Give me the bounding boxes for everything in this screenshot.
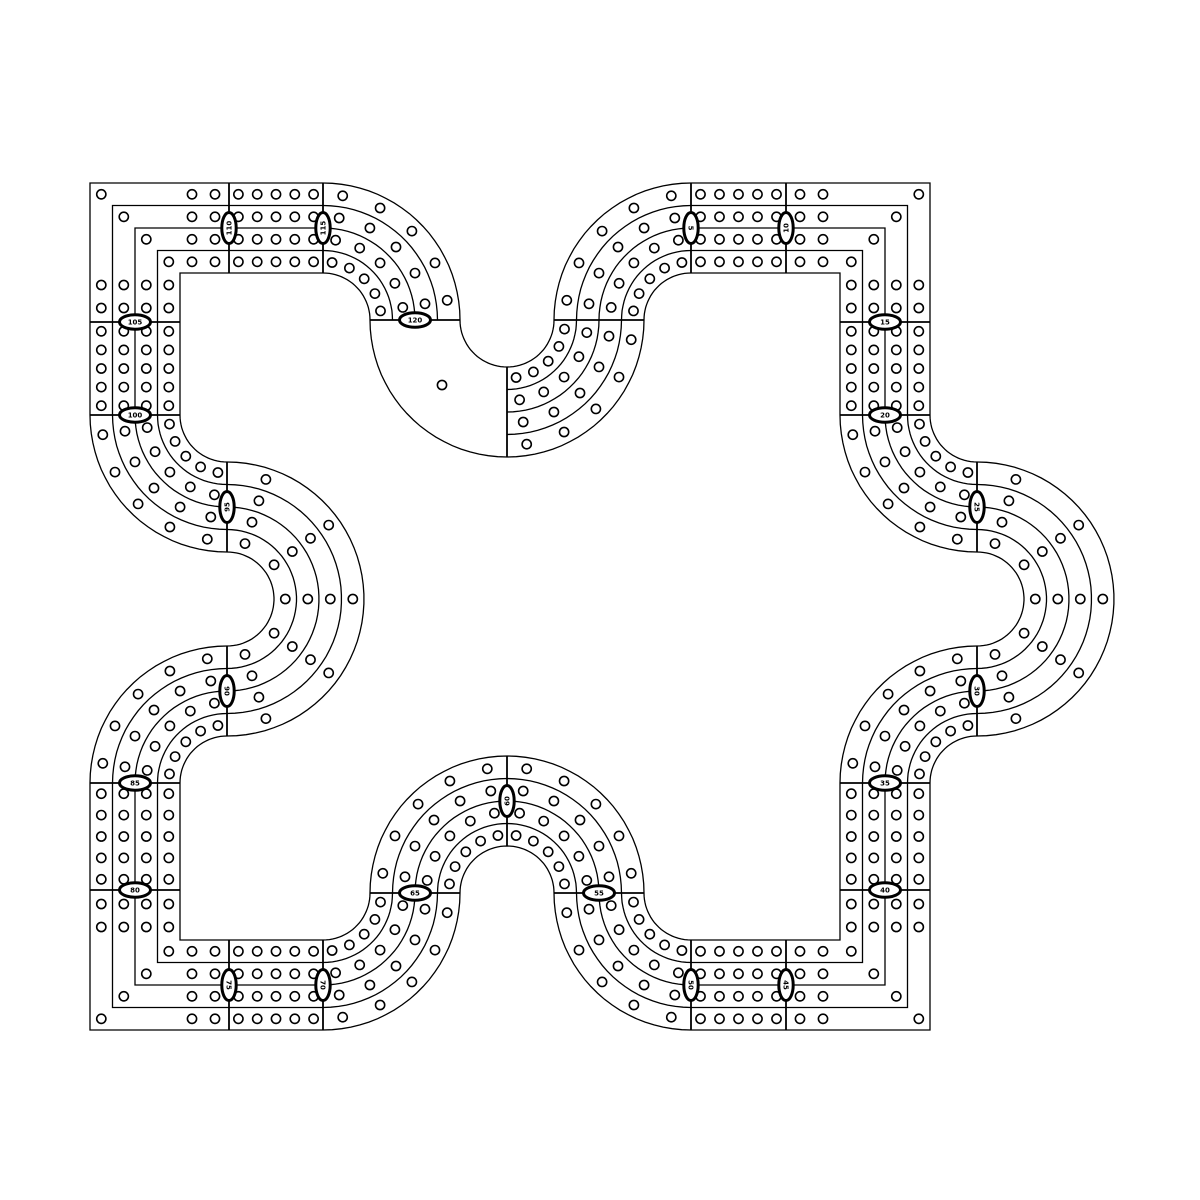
peg-hole xyxy=(914,364,923,373)
peg-hole xyxy=(953,654,962,663)
peg-hole xyxy=(390,279,399,288)
peg-hole xyxy=(1004,693,1013,702)
peg-hole xyxy=(186,482,195,491)
peg-hole xyxy=(290,257,299,266)
peg-hole xyxy=(554,342,563,351)
peg-hole xyxy=(324,668,333,677)
peg-hole xyxy=(598,977,607,986)
peg-hole xyxy=(400,872,409,881)
peg-hole xyxy=(914,190,923,199)
peg-hole xyxy=(734,190,743,199)
mile-marker-value: 40 xyxy=(880,886,890,894)
peg-hole xyxy=(143,423,152,432)
peg-hole xyxy=(414,800,423,809)
peg-hole xyxy=(869,303,878,312)
peg-hole xyxy=(584,299,593,308)
peg-hole xyxy=(493,831,502,840)
peg-hole xyxy=(97,190,106,199)
peg-hole xyxy=(677,258,686,267)
peg-hole xyxy=(734,992,743,1001)
mile-marker-value: 25 xyxy=(973,502,981,512)
peg-hole xyxy=(696,257,705,266)
peg-hole xyxy=(847,345,856,354)
peg-hole xyxy=(946,462,955,471)
peg-hole xyxy=(604,332,613,341)
peg-hole xyxy=(560,427,569,436)
peg-hole xyxy=(119,280,128,289)
peg-hole xyxy=(98,430,107,439)
peg-hole xyxy=(119,383,128,392)
peg-hole xyxy=(696,1014,705,1023)
peg-hole xyxy=(376,306,385,315)
peg-hole xyxy=(326,594,335,603)
peg-hole xyxy=(953,535,962,544)
peg-hole xyxy=(430,258,439,267)
peg-hole xyxy=(270,560,279,569)
peg-hole xyxy=(914,875,923,884)
peg-hole xyxy=(1011,714,1020,723)
peg-hole xyxy=(288,547,297,556)
peg-hole xyxy=(560,831,569,840)
peg-hole xyxy=(445,776,454,785)
peg-hole xyxy=(98,759,107,768)
peg-hole xyxy=(309,947,318,956)
peg-hole xyxy=(869,832,878,841)
peg-hole xyxy=(847,947,856,956)
peg-hole xyxy=(753,212,762,221)
peg-hole xyxy=(847,922,856,931)
peg-hole xyxy=(196,727,205,736)
peg-hole xyxy=(847,401,856,410)
peg-hole xyxy=(490,809,499,818)
peg-hole xyxy=(847,875,856,884)
peg-hole xyxy=(338,191,347,200)
peg-hole xyxy=(97,401,106,410)
peg-hole xyxy=(253,190,262,199)
peg-hole xyxy=(187,212,196,221)
peg-hole xyxy=(574,852,583,861)
peg-hole xyxy=(772,190,781,199)
peg-hole xyxy=(956,676,965,685)
peg-hole xyxy=(753,969,762,978)
peg-hole xyxy=(187,992,196,1001)
peg-hole xyxy=(795,969,804,978)
mile-marker-value: 15 xyxy=(880,318,890,326)
peg-hole xyxy=(164,257,173,266)
mile-marker-value: 60 xyxy=(503,796,511,806)
peg-hole xyxy=(328,258,337,267)
peg-hole xyxy=(629,946,638,955)
peg-hole xyxy=(529,367,538,376)
peg-hole xyxy=(892,212,901,221)
peg-hole xyxy=(960,699,969,708)
peg-hole xyxy=(869,364,878,373)
peg-hole xyxy=(206,512,215,521)
peg-hole xyxy=(142,853,151,862)
peg-hole xyxy=(869,853,878,862)
peg-hole xyxy=(423,876,432,885)
peg-hole xyxy=(892,280,901,289)
peg-hole xyxy=(253,969,262,978)
peg-hole xyxy=(515,809,524,818)
peg-hole xyxy=(365,980,374,989)
peg-hole xyxy=(582,876,591,885)
peg-hole xyxy=(667,1013,676,1022)
peg-hole xyxy=(915,420,924,429)
peg-hole xyxy=(615,925,624,934)
peg-hole xyxy=(97,922,106,931)
mile-marker: 90 xyxy=(220,676,234,707)
peg-hole xyxy=(847,789,856,798)
peg-hole xyxy=(892,303,901,312)
mile-marker-value: 90 xyxy=(223,686,231,696)
peg-hole xyxy=(149,483,158,492)
peg-hole xyxy=(936,707,945,716)
peg-hole xyxy=(734,1014,743,1023)
peg-hole xyxy=(696,947,705,956)
peg-hole xyxy=(181,737,190,746)
peg-hole xyxy=(715,992,724,1001)
mile-marker-value: 30 xyxy=(973,686,981,696)
peg-hole xyxy=(306,655,315,664)
peg-hole xyxy=(795,992,804,1001)
peg-hole xyxy=(187,969,196,978)
peg-hole xyxy=(591,404,600,413)
mile-marker-value: 70 xyxy=(319,980,327,990)
peg-hole xyxy=(97,327,106,336)
peg-hole xyxy=(376,258,385,267)
peg-hole xyxy=(560,325,569,334)
peg-hole xyxy=(607,303,616,312)
mile-marker: 80 xyxy=(120,883,151,897)
peg-hole xyxy=(914,280,923,289)
peg-hole xyxy=(97,832,106,841)
peg-hole xyxy=(892,345,901,354)
peg-hole xyxy=(290,992,299,1001)
peg-hole xyxy=(734,969,743,978)
peg-hole xyxy=(270,629,279,638)
peg-hole xyxy=(142,832,151,841)
peg-hole xyxy=(753,235,762,244)
peg-hole xyxy=(254,693,263,702)
peg-hole xyxy=(97,280,106,289)
peg-hole xyxy=(309,1014,318,1023)
peg-hole xyxy=(715,1014,724,1023)
peg-hole xyxy=(324,521,333,530)
peg-hole xyxy=(869,280,878,289)
peg-hole xyxy=(165,721,174,730)
peg-hole xyxy=(187,235,196,244)
peg-hole xyxy=(522,764,531,773)
peg-hole xyxy=(614,373,623,382)
peg-hole xyxy=(210,969,219,978)
peg-hole xyxy=(584,905,593,914)
peg-hole xyxy=(355,960,364,969)
peg-hole xyxy=(914,811,923,820)
mile-marker: 35 xyxy=(870,776,901,790)
peg-hole xyxy=(335,990,344,999)
peg-hole xyxy=(164,947,173,956)
peg-hole xyxy=(164,811,173,820)
mile-marker: 65 xyxy=(400,886,431,900)
peg-hole xyxy=(143,766,152,775)
peg-hole xyxy=(338,1013,347,1022)
peg-hole xyxy=(549,796,558,805)
mile-marker-value: 35 xyxy=(880,779,890,787)
peg-hole xyxy=(607,901,616,910)
peg-hole xyxy=(290,969,299,978)
peg-hole xyxy=(97,789,106,798)
peg-hole xyxy=(613,242,622,251)
peg-hole xyxy=(715,969,724,978)
mile-marker-value: 65 xyxy=(410,889,420,897)
peg-hole xyxy=(997,518,1006,527)
peg-hole xyxy=(120,427,129,436)
peg-hole xyxy=(892,992,901,1001)
peg-hole xyxy=(130,457,139,466)
peg-hole xyxy=(734,947,743,956)
mile-marker: 120 xyxy=(400,313,431,327)
peg-hole xyxy=(290,190,299,199)
peg-hole xyxy=(901,742,910,751)
peg-hole xyxy=(376,946,385,955)
peg-hole xyxy=(539,817,548,826)
peg-hole xyxy=(847,853,856,862)
drawing-page: 5101520253035404550556065707580859095100… xyxy=(0,0,1200,1200)
peg-hole xyxy=(445,831,454,840)
peg-hole xyxy=(869,969,878,978)
peg-hole xyxy=(164,922,173,931)
mile-marker: 105 xyxy=(120,315,151,329)
peg-hole xyxy=(210,235,219,244)
peg-hole xyxy=(164,327,173,336)
mile-marker: 25 xyxy=(970,492,984,523)
peg-hole xyxy=(309,190,318,199)
mile-marker: 75 xyxy=(222,970,236,1001)
peg-hole xyxy=(847,364,856,373)
peg-hole xyxy=(210,992,219,1001)
peg-hole xyxy=(164,832,173,841)
peg-hole xyxy=(753,992,762,1001)
peg-hole xyxy=(562,908,571,917)
peg-hole xyxy=(410,269,419,278)
peg-hole xyxy=(290,1014,299,1023)
peg-hole xyxy=(753,947,762,956)
peg-hole xyxy=(818,992,827,1001)
peg-hole xyxy=(407,977,416,986)
peg-hole xyxy=(261,714,270,723)
mile-marker-value: 110 xyxy=(225,221,233,236)
peg-hole xyxy=(210,490,219,499)
peg-hole xyxy=(119,899,128,908)
peg-hole xyxy=(430,946,439,955)
peg-hole xyxy=(119,212,128,221)
peg-hole xyxy=(914,327,923,336)
peg-hole xyxy=(119,345,128,354)
peg-hole xyxy=(253,212,262,221)
peg-hole xyxy=(892,922,901,931)
peg-hole xyxy=(818,947,827,956)
peg-hole xyxy=(772,1014,781,1023)
peg-hole xyxy=(119,992,128,1001)
peg-hole xyxy=(818,190,827,199)
peg-hole xyxy=(582,328,591,337)
peg-hole xyxy=(818,1014,827,1023)
peg-hole xyxy=(376,203,385,212)
peg-hole xyxy=(674,236,683,245)
peg-hole xyxy=(715,190,724,199)
peg-hole xyxy=(847,899,856,908)
mile-marker: 115 xyxy=(316,213,330,244)
peg-hole xyxy=(892,853,901,862)
peg-hole xyxy=(667,191,676,200)
peg-hole xyxy=(97,875,106,884)
mile-marker: 5 xyxy=(684,213,698,244)
peg-hole xyxy=(119,364,128,373)
peg-hole xyxy=(892,364,901,373)
mile-marker-value: 10 xyxy=(782,223,790,233)
peg-hole xyxy=(670,213,679,222)
peg-hole xyxy=(511,831,520,840)
peg-hole xyxy=(529,837,538,846)
peg-hole xyxy=(696,190,705,199)
peg-hole xyxy=(926,686,935,695)
peg-hole xyxy=(847,832,856,841)
peg-hole xyxy=(554,862,563,871)
peg-hole xyxy=(660,264,669,273)
peg-hole xyxy=(186,707,195,716)
peg-hole xyxy=(119,922,128,931)
peg-hole xyxy=(914,832,923,841)
peg-hole xyxy=(960,490,969,499)
peg-hole xyxy=(348,594,357,603)
peg-hole xyxy=(97,303,106,312)
peg-hole xyxy=(420,905,429,914)
peg-hole xyxy=(627,335,636,344)
peg-hole xyxy=(560,776,569,785)
peg-hole xyxy=(795,1014,804,1023)
peg-hole xyxy=(645,930,654,939)
peg-hole xyxy=(476,837,485,846)
peg-hole xyxy=(931,737,940,746)
peg-hole xyxy=(187,947,196,956)
peg-hole xyxy=(134,499,143,508)
peg-hole xyxy=(847,257,856,266)
peg-hole xyxy=(635,289,644,298)
peg-hole xyxy=(288,642,297,651)
peg-hole xyxy=(290,235,299,244)
peg-hole xyxy=(880,732,889,741)
peg-hole xyxy=(355,244,364,253)
peg-hole xyxy=(466,817,475,826)
peg-hole xyxy=(164,364,173,373)
peg-hole xyxy=(549,407,558,416)
peg-hole xyxy=(892,811,901,820)
peg-hole xyxy=(360,274,369,283)
peg-hole xyxy=(847,811,856,820)
peg-hole xyxy=(869,899,878,908)
peg-hole xyxy=(110,468,119,477)
peg-hole xyxy=(870,427,879,436)
peg-hole xyxy=(869,383,878,392)
peg-hole xyxy=(884,499,893,508)
peg-hole xyxy=(522,440,531,449)
peg-hole xyxy=(614,831,623,840)
peg-hole xyxy=(1056,534,1065,543)
mile-marker-value: 75 xyxy=(225,980,233,990)
peg-hole xyxy=(407,227,416,236)
peg-hole xyxy=(97,853,106,862)
peg-hole xyxy=(240,539,249,548)
mile-marker-value: 80 xyxy=(130,886,140,894)
peg-hole xyxy=(956,512,965,521)
peg-hole xyxy=(253,235,262,244)
peg-hole xyxy=(818,235,827,244)
peg-hole xyxy=(1056,655,1065,664)
peg-hole xyxy=(519,417,528,426)
peg-hole xyxy=(271,992,280,1001)
peg-hole xyxy=(574,352,583,361)
peg-hole xyxy=(187,190,196,199)
peg-hole xyxy=(210,257,219,266)
peg-hole xyxy=(142,280,151,289)
peg-hole xyxy=(511,373,520,382)
peg-hole xyxy=(398,303,407,312)
peg-hole xyxy=(443,296,452,305)
peg-hole xyxy=(210,947,219,956)
peg-hole xyxy=(946,727,955,736)
peg-hole xyxy=(921,752,930,761)
peg-hole xyxy=(142,922,151,931)
peg-hole xyxy=(398,901,407,910)
peg-hole xyxy=(391,961,400,970)
peg-hole xyxy=(795,257,804,266)
peg-hole xyxy=(271,969,280,978)
peg-hole xyxy=(365,223,374,232)
peg-hole xyxy=(97,811,106,820)
peg-hole xyxy=(847,383,856,392)
mile-marker: 40 xyxy=(870,883,901,897)
peg-hole xyxy=(328,946,337,955)
peg-hole xyxy=(892,899,901,908)
peg-hole xyxy=(176,686,185,695)
peg-hole xyxy=(893,766,902,775)
peg-hole xyxy=(360,930,369,939)
peg-hole xyxy=(772,257,781,266)
peg-hole xyxy=(963,468,972,477)
peg-hole xyxy=(253,257,262,266)
peg-hole xyxy=(795,947,804,956)
peg-hole xyxy=(629,898,638,907)
mile-marker-value: 85 xyxy=(130,779,140,787)
peg-hole xyxy=(1020,629,1029,638)
mile-marker-value: 45 xyxy=(782,980,790,990)
peg-hole xyxy=(97,364,106,373)
peg-hole xyxy=(142,235,151,244)
mile-marker: 100 xyxy=(120,408,151,422)
peg-hole xyxy=(119,303,128,312)
peg-hole xyxy=(196,462,205,471)
peg-hole xyxy=(562,296,571,305)
peg-hole xyxy=(142,303,151,312)
peg-hole xyxy=(544,357,553,366)
peg-hole xyxy=(880,457,889,466)
peg-hole xyxy=(635,915,644,924)
mile-marker: 30 xyxy=(970,676,984,707)
peg-hole xyxy=(165,468,174,477)
peg-hole xyxy=(1074,668,1083,677)
mile-marker: 20 xyxy=(870,408,901,422)
